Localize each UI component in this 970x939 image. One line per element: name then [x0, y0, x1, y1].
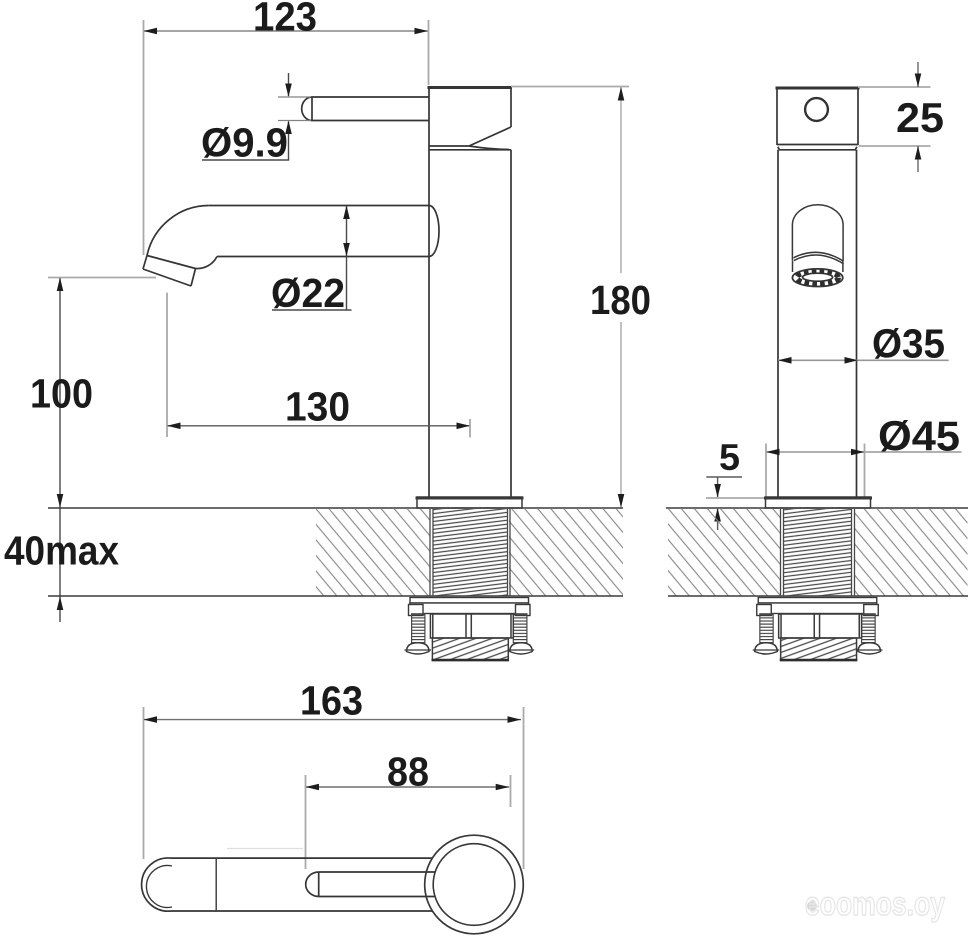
svg-text:25: 25: [896, 94, 944, 141]
svg-text:5: 5: [719, 437, 740, 478]
svg-text:100: 100: [30, 371, 93, 417]
svg-text:Ø9.9: Ø9.9: [201, 120, 288, 166]
svg-text:40max: 40max: [4, 528, 119, 574]
svg-text:130: 130: [285, 384, 350, 430]
svg-text:eoomos.oy: eoomos.oy: [805, 885, 946, 922]
svg-text:Ø35: Ø35: [872, 321, 945, 367]
svg-text:Ø22: Ø22: [271, 270, 345, 316]
svg-text:88: 88: [387, 749, 429, 795]
svg-text:180: 180: [590, 277, 651, 323]
svg-text:123: 123: [253, 0, 317, 40]
svg-text:163: 163: [300, 678, 363, 724]
svg-text:Ø45: Ø45: [878, 413, 960, 460]
